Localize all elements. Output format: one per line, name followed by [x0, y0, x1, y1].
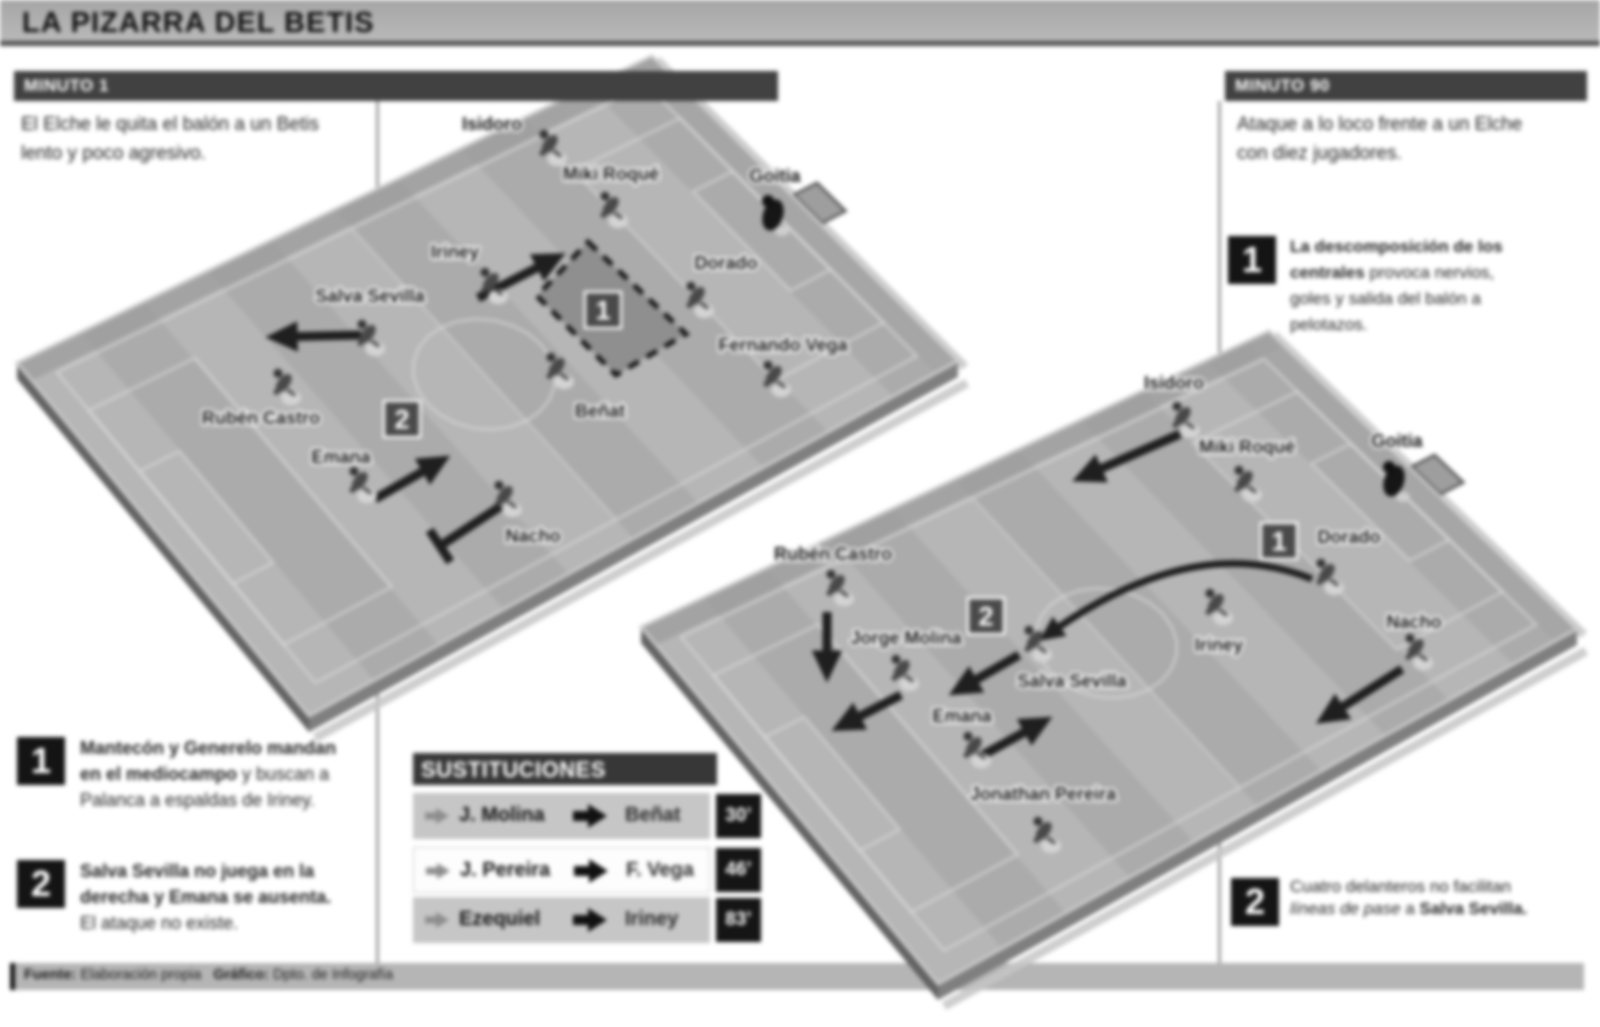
svg-text:Isidoro: Isidoro: [462, 114, 522, 134]
svg-text:Rubén Castro: Rubén Castro: [202, 408, 320, 428]
svg-text:1: 1: [1271, 527, 1286, 557]
svg-text:Miki Roqué: Miki Roqué: [1199, 437, 1295, 457]
svg-text:Beñat: Beñat: [575, 401, 625, 421]
svg-text:Goitia: Goitia: [1371, 431, 1423, 451]
svg-text:Goitia: Goitia: [749, 166, 801, 186]
svg-text:Isidoro: Isidoro: [1144, 373, 1204, 393]
svg-text:Fernando Vega: Fernando Vega: [718, 335, 848, 355]
svg-text:Dorado: Dorado: [1318, 527, 1381, 547]
svg-text:Nacho: Nacho: [505, 526, 560, 546]
svg-text:Miki Roqué: Miki Roqué: [563, 164, 659, 184]
svg-text:2: 2: [978, 602, 993, 632]
svg-text:Emana: Emana: [932, 706, 992, 726]
svg-text:Dorado: Dorado: [695, 253, 758, 273]
svg-text:Salva Sevilla: Salva Sevilla: [315, 286, 425, 306]
svg-text:Nacho: Nacho: [1386, 612, 1441, 632]
svg-text:2: 2: [394, 405, 409, 435]
svg-text:Salva Sevilla: Salva Sevilla: [1017, 671, 1127, 691]
svg-text:Rubén Castro: Rubén Castro: [774, 544, 892, 564]
svg-text:1: 1: [595, 296, 610, 326]
svg-text:Jonathan Pereira: Jonathan Pereira: [970, 784, 1117, 804]
svg-text:Emana: Emana: [311, 447, 371, 467]
svg-text:Iriney: Iriney: [431, 242, 479, 262]
svg-text:Jorge Molina: Jorge Molina: [850, 628, 962, 648]
svg-text:Iriney: Iriney: [1195, 635, 1243, 655]
